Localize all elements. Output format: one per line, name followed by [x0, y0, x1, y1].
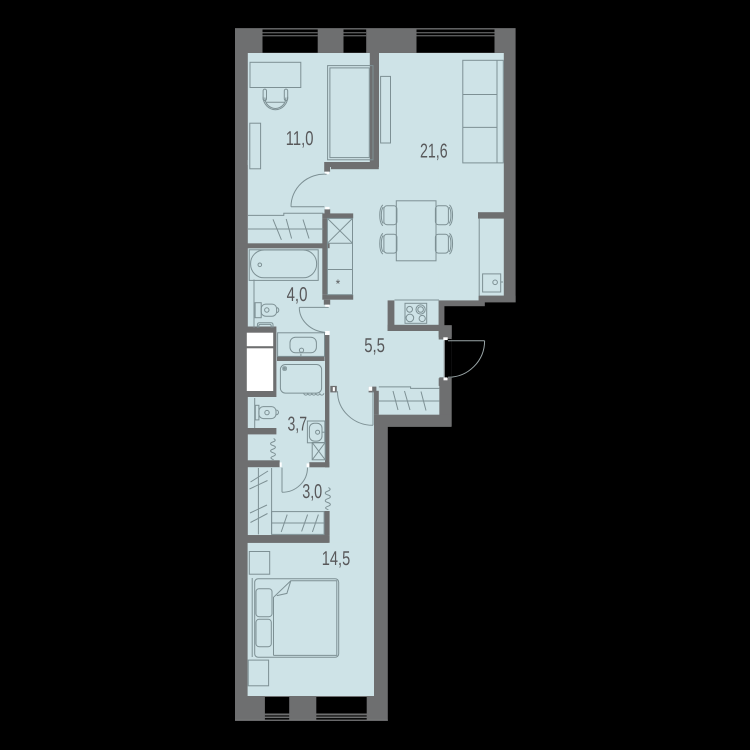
svg-text:4,0: 4,0	[287, 284, 308, 306]
svg-text:5,5: 5,5	[364, 335, 385, 357]
svg-text:3,0: 3,0	[302, 481, 322, 503]
svg-text:14,5: 14,5	[322, 548, 350, 570]
svg-text:*: *	[336, 277, 341, 291]
svg-text:21,6: 21,6	[420, 141, 448, 163]
svg-text:11,0: 11,0	[286, 128, 314, 150]
svg-text:3,7: 3,7	[288, 414, 308, 436]
